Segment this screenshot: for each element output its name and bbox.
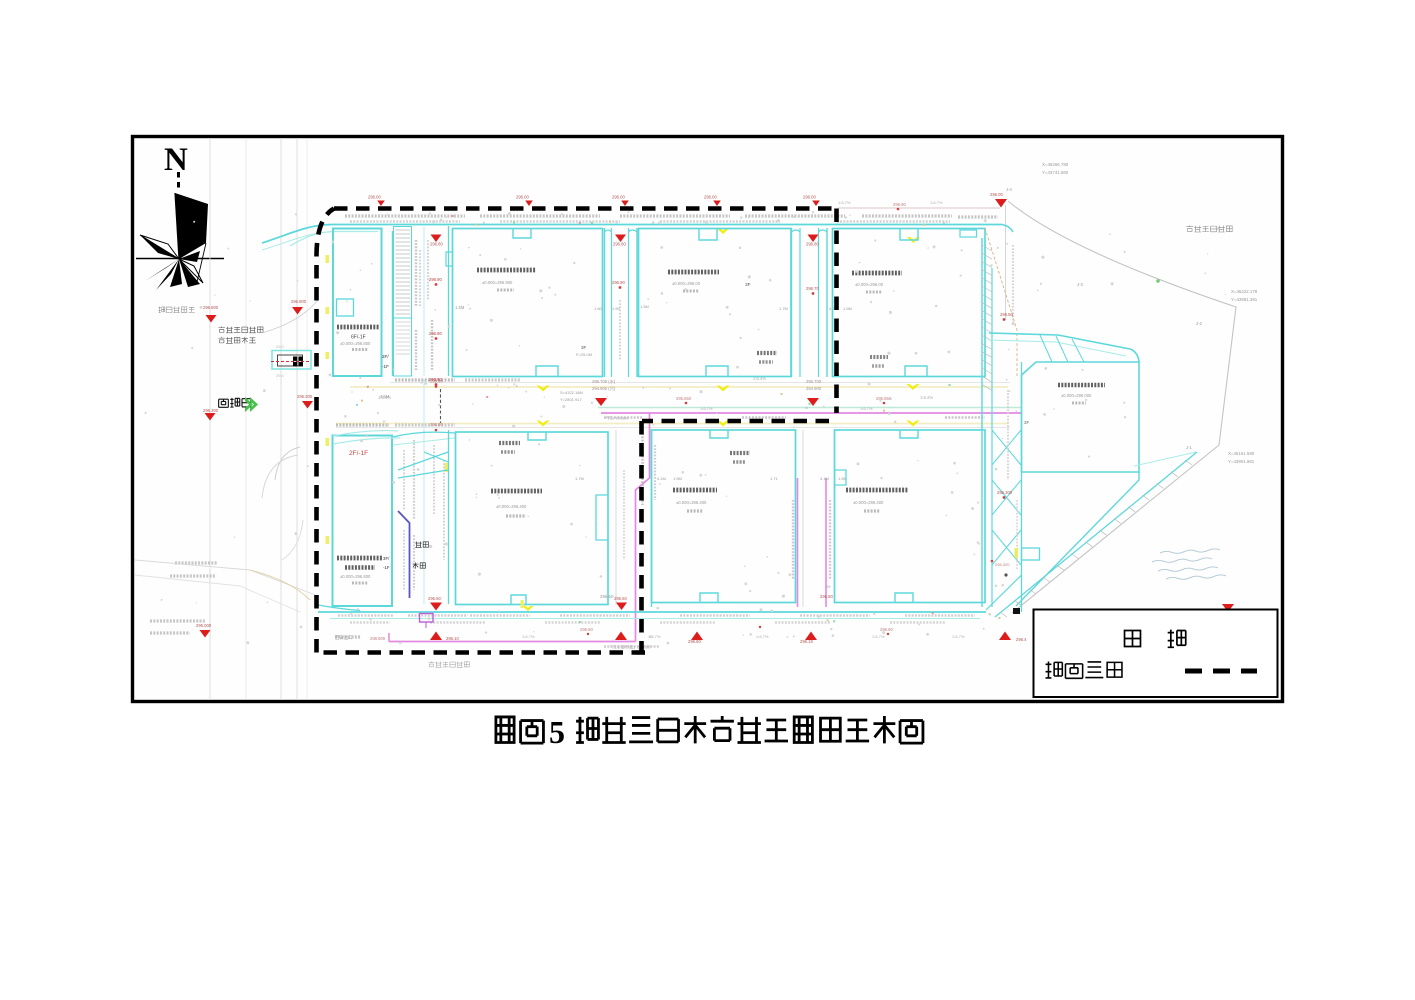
svg-text:±0.000=296.400: ±0.000=296.400 bbox=[676, 500, 707, 505]
svg-text:F=25.0M: F=25.0M bbox=[576, 352, 592, 357]
svg-text:Y=2801.917: Y=2801.917 bbox=[560, 397, 582, 402]
svg-text:296.00: 296.00 bbox=[990, 192, 1003, 197]
svg-text:3F: 3F bbox=[581, 345, 587, 350]
svg-text:3F: 3F bbox=[745, 282, 751, 288]
svg-text:J-3: J-3 bbox=[1077, 282, 1083, 287]
svg-text:294.900: 294.900 bbox=[806, 386, 822, 391]
svg-text:N: N bbox=[164, 142, 188, 178]
svg-text:X=45222.178: X=45222.178 bbox=[1231, 289, 1258, 294]
svg-text:J-2: J-2 bbox=[1196, 321, 1202, 326]
svg-text:4:5M: 4:5M bbox=[380, 394, 390, 399]
svg-text:29.0: 29.0 bbox=[276, 344, 285, 349]
svg-text:3F: 3F bbox=[1024, 420, 1029, 425]
svg-text:296.50: 296.50 bbox=[428, 596, 441, 601]
svg-text:±0.000=296.00: ±0.000=296.00 bbox=[855, 282, 884, 287]
svg-text:296.4: 296.4 bbox=[1016, 637, 1027, 642]
svg-text:X=45266.780: X=45266.780 bbox=[1042, 162, 1069, 167]
svg-text:296.90: 296.90 bbox=[893, 202, 906, 207]
svg-text:296.00: 296.00 bbox=[803, 195, 816, 200]
svg-text:296.80: 296.80 bbox=[806, 242, 819, 247]
svg-text:296.90: 296.90 bbox=[612, 280, 625, 285]
svg-text:1:6.4%: 1:6.4% bbox=[920, 395, 933, 400]
svg-text:296.300: 296.300 bbox=[997, 490, 1013, 495]
svg-text:296.80: 296.80 bbox=[429, 331, 442, 336]
svg-text:296.800: 296.800 bbox=[203, 305, 219, 310]
svg-text:296.80: 296.80 bbox=[613, 242, 626, 247]
svg-text:294.900 (污): 294.900 (污) bbox=[592, 385, 616, 392]
svg-text:4.1M: 4.1M bbox=[820, 476, 829, 481]
svg-text:5: 5 bbox=[549, 714, 565, 750]
svg-text:1:6.7%: 1:6.7% bbox=[756, 634, 769, 639]
svg-text:Y=43741.660: Y=43741.660 bbox=[1042, 170, 1069, 175]
svg-text:296.70: 296.70 bbox=[806, 286, 819, 291]
svg-text:2F/: 2F/ bbox=[382, 354, 389, 359]
svg-text:±0.000=296.000: ±0.000=296.000 bbox=[1061, 393, 1092, 398]
svg-text:296.000: 296.000 bbox=[196, 623, 212, 628]
svg-text:296.50: 296.50 bbox=[820, 594, 833, 599]
svg-text:1.60: 1.60 bbox=[594, 306, 603, 311]
svg-text:S=4322.18M: S=4322.18M bbox=[560, 390, 583, 395]
svg-text:296.50: 296.50 bbox=[1000, 312, 1013, 317]
svg-text:29: 29 bbox=[826, 584, 831, 589]
svg-text:1.5M: 1.5M bbox=[673, 476, 682, 481]
svg-text:±0.000=296.00: ±0.000=296.00 bbox=[672, 281, 701, 286]
svg-text:296.320: 296.320 bbox=[995, 562, 1010, 567]
svg-text:296.80: 296.80 bbox=[430, 242, 443, 247]
svg-text:296.80: 296.80 bbox=[430, 422, 443, 427]
svg-text:296.60: 296.60 bbox=[688, 639, 701, 644]
svg-text:296.300: 296.300 bbox=[203, 408, 219, 413]
svg-text:1.5M: 1.5M bbox=[843, 306, 852, 311]
svg-text:29.0: 29.0 bbox=[276, 373, 285, 378]
svg-text:296.00: 296.00 bbox=[516, 195, 529, 200]
svg-text:296.00: 296.00 bbox=[612, 195, 625, 200]
svg-text:±0.000=296.800: ±0.000=296.800 bbox=[340, 574, 371, 579]
svg-text:296.00: 296.00 bbox=[704, 195, 717, 200]
svg-text:±0.000=296.900: ±0.000=296.900 bbox=[482, 280, 513, 285]
svg-text:1:6.7%: 1:6.7% bbox=[930, 200, 943, 205]
svg-text:1:6.7%: 1:6.7% bbox=[522, 634, 535, 639]
svg-text:Y=43991.381: Y=43991.381 bbox=[1231, 297, 1258, 302]
svg-text:296.50: 296.50 bbox=[614, 596, 627, 601]
svg-text:295.700 (水): 295.700 (水) bbox=[592, 378, 616, 384]
svg-text:1.7M: 1.7M bbox=[575, 476, 584, 481]
svg-text:296.60: 296.60 bbox=[580, 627, 593, 632]
svg-text:1:6.7%: 1:6.7% bbox=[952, 634, 965, 639]
svg-text:296.80: 296.80 bbox=[429, 377, 442, 382]
svg-text:1.7M: 1.7M bbox=[779, 306, 788, 311]
svg-text:2F/-1F: 2F/-1F bbox=[349, 450, 368, 457]
svg-text:±0.000=296.400: ±0.000=296.400 bbox=[853, 500, 884, 505]
svg-text:296.800: 296.800 bbox=[291, 299, 307, 304]
svg-text:±0.000=296.800: ±0.000=296.800 bbox=[340, 341, 371, 346]
svg-text:1:6.7%: 1:6.7% bbox=[838, 200, 851, 205]
svg-text:1:6.7%: 1:6.7% bbox=[700, 406, 713, 411]
svg-text:296.90: 296.90 bbox=[429, 277, 442, 282]
svg-text:6F/-1F: 6F/-1F bbox=[351, 335, 366, 341]
svg-text:296.18: 296.18 bbox=[800, 639, 813, 644]
svg-text:-1F: -1F bbox=[383, 565, 390, 570]
svg-text:296.10: 296.10 bbox=[446, 636, 459, 641]
svg-text:296.300: 296.300 bbox=[297, 394, 313, 399]
svg-text:295.700: 295.700 bbox=[806, 379, 822, 384]
svg-text:J-4: J-4 bbox=[1006, 187, 1012, 192]
svg-text:296.60: 296.60 bbox=[880, 627, 893, 632]
svg-text:298.800: 298.800 bbox=[370, 636, 386, 641]
svg-text:-1F: -1F bbox=[382, 364, 389, 369]
svg-text:1.50: 1.50 bbox=[612, 306, 621, 311]
svg-text:3F/: 3F/ bbox=[383, 556, 390, 561]
svg-text:1.5M: 1.5M bbox=[640, 304, 649, 309]
svg-text:4.1M: 4.1M bbox=[657, 476, 666, 481]
svg-text:J-1: J-1 bbox=[1186, 445, 1192, 450]
svg-text:296.00: 296.00 bbox=[368, 195, 381, 200]
svg-text:1.71: 1.71 bbox=[770, 476, 779, 481]
svg-text:1.5M: 1.5M bbox=[455, 305, 465, 310]
svg-text:1:6.7%: 1:6.7% bbox=[860, 406, 873, 411]
svg-text:Y=43901.981: Y=43901.981 bbox=[1228, 459, 1255, 464]
svg-text:296.50: 296.50 bbox=[600, 594, 614, 599]
svg-text:±0.000=296.400: ±0.000=296.400 bbox=[496, 504, 527, 509]
svg-text:1:6.7%: 1:6.7% bbox=[872, 634, 885, 639]
svg-text:295.650: 295.650 bbox=[676, 396, 692, 401]
svg-text:295.650: 295.650 bbox=[876, 396, 892, 401]
svg-text:X=45161.590: X=45161.590 bbox=[1228, 451, 1255, 456]
